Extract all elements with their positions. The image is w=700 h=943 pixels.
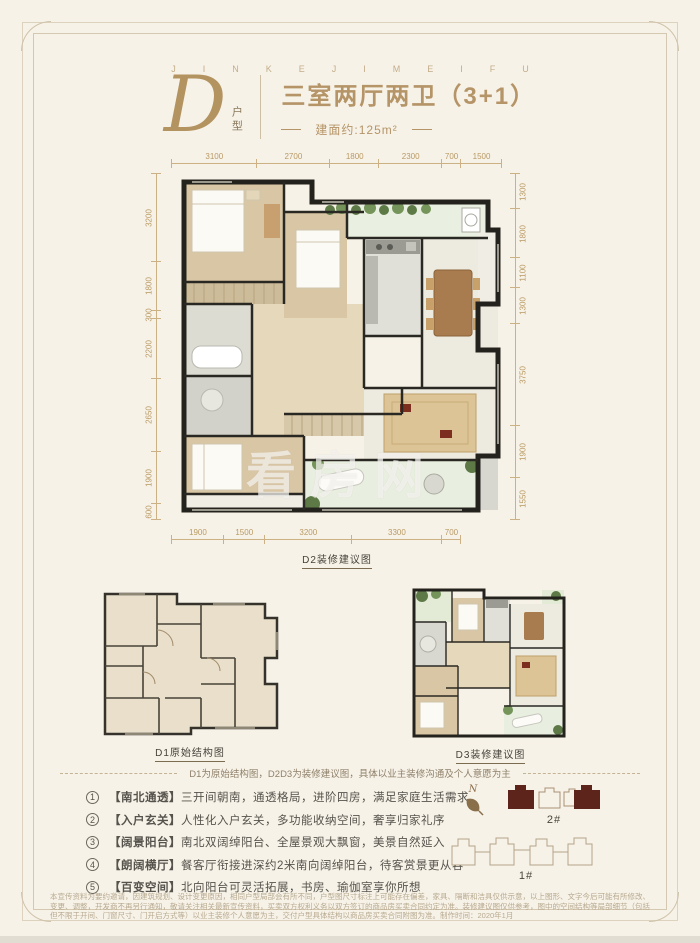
feature-text: 三开间朝南，通透格局，进阶四房，满足家庭生活需求 xyxy=(181,789,469,805)
feature-tag: 【朗阔横厅】 xyxy=(109,857,181,873)
building-1-graphic xyxy=(450,834,602,868)
poster-page: JINKEJIMEIFU D 户型 三室两厅两卫（3+1） 建面约:125m² … xyxy=(0,0,700,943)
feature-tag: 【阔景阳台】 xyxy=(109,834,181,850)
dim-chain-bottom: 1900 1500 3200 3300 700 xyxy=(172,528,461,544)
unit-header: D 户型 三室两厅两卫（3+1） 建面约:125m² xyxy=(0,72,700,142)
dim-label: 1800 xyxy=(330,152,379,168)
dim-label: 2200 xyxy=(145,340,154,358)
legal-disclaimer: 本宣传资料为要约邀请，因建筑规划、设计变更原因，相同户型局部会有所不同，户型图尺… xyxy=(50,892,650,921)
frame-corner-arc xyxy=(649,892,679,922)
building-2-shape xyxy=(506,782,602,817)
feature-item: 3 【阔景阳台】 南北双阔绰阳台、全屋景观大飘窗，美景自然延入 xyxy=(86,834,486,850)
note-text: D1为原始结构图，D2D3为装修建议图，具体以业主装修沟通及个人意愿为主 xyxy=(189,766,510,780)
unit-letter-label: 户型 xyxy=(228,106,244,134)
floorplan-d2-graphic xyxy=(172,174,502,520)
caption-d2: D2装修建议图 xyxy=(172,551,502,568)
feature-tag: 【南北通透】 xyxy=(109,789,181,805)
compass: N xyxy=(456,784,490,822)
feature-text: 南北双阔绰阳台、全屋景观大飘窗，美景自然延入 xyxy=(181,834,445,850)
frame-corner-arc xyxy=(649,21,679,51)
caption-d3: D3装修建议图 xyxy=(408,746,573,763)
building-1-label: 1# xyxy=(450,870,602,882)
feature-item: 1 【南北通透】 三开间朝南，通透格局，进阶四房，满足家庭生活需求 xyxy=(86,789,486,805)
dim-label: 1300 xyxy=(519,183,528,201)
floorplan-d1 xyxy=(95,588,285,745)
feature-item: 2 【入户玄关】 人性化入户玄关，多功能收纳空间，奢享归家礼序 xyxy=(86,812,486,828)
dim-chain-left: 3200 1800 300 2200 2650 1900 600 xyxy=(146,174,162,520)
feature-text: 餐客厅衔接进深约2米南向阔绰阳台，待客赏景更从容 xyxy=(181,857,464,873)
building-1-shape xyxy=(450,834,602,873)
feature-number: 3 xyxy=(86,836,99,849)
dim-label: 1100 xyxy=(519,265,528,282)
dim-label: 1550 xyxy=(519,490,528,508)
dim-label: 700 xyxy=(442,152,461,168)
dash-left xyxy=(281,129,301,130)
disclaimer-line: 门开启方式等）以业主装修个人意愿为主，交付户型具体结构以商品房买卖合同附图为准。… xyxy=(140,911,513,920)
dim-label: 1500 xyxy=(461,152,502,168)
unit-letter: D xyxy=(164,70,227,140)
note-dash-right xyxy=(523,773,640,774)
dim-label: 3750 xyxy=(519,366,528,384)
dim-label: 1900 xyxy=(145,469,154,487)
floorplan-d3 xyxy=(408,584,573,747)
frame-corner-arc xyxy=(21,21,51,51)
dim-chain-top: 3100 2700 1800 2300 700 1500 xyxy=(172,152,502,168)
header-divider xyxy=(260,75,261,139)
dash-right xyxy=(412,129,432,130)
plans-note: D1为原始结构图，D2D3为装修建议图，具体以业主装修沟通及个人意愿为主 xyxy=(60,766,640,780)
dim-label: 1900 xyxy=(519,443,528,461)
dim-label: 1800 xyxy=(145,277,154,295)
area-value: 建面约:125m² xyxy=(315,121,397,138)
feature-number: 2 xyxy=(86,813,99,826)
feature-item: 4 【朗阔横厅】 餐客厅衔接进深约2米南向阔绰阳台，待客赏景更从容 xyxy=(86,857,486,873)
frame-corner-arc xyxy=(21,892,51,922)
caption-d1: D1原始结构图 xyxy=(95,744,285,761)
dim-label: 1500 xyxy=(224,528,265,544)
dim-label: 1300 xyxy=(519,297,528,315)
dim-label: 3200 xyxy=(265,528,352,544)
note-dash-left xyxy=(60,773,177,774)
dim-label: 2700 xyxy=(257,152,331,168)
feature-text: 人性化入户玄关，多功能收纳空间，奢享归家礼序 xyxy=(181,812,445,828)
page-bottom-edge xyxy=(0,936,700,943)
dim-label: 600 xyxy=(145,505,154,518)
floorplan-d3-graphic xyxy=(408,584,573,742)
dim-label: 3200 xyxy=(145,209,154,227)
dim-label: 2300 xyxy=(379,152,442,168)
dim-label: 2650 xyxy=(145,406,154,424)
dim-label: 1800 xyxy=(519,225,528,243)
dim-chain-right: 1300 1800 1100 1300 3750 1900 1550 xyxy=(510,174,526,520)
page-title: 三室两厅两卫（3+1） xyxy=(281,76,536,111)
area-line: 建面约:125m² xyxy=(281,121,536,138)
feature-number: 1 xyxy=(86,791,99,804)
feature-list: 1 【南北通透】 三开间朝南，通透格局，进阶四房，满足家庭生活需求 2 【入户玄… xyxy=(86,789,486,902)
floorplan-d1-graphic xyxy=(95,588,285,740)
building-2-label: 2# xyxy=(506,814,602,826)
dim-label: 1900 xyxy=(172,528,224,544)
dim-label: 3100 xyxy=(172,152,257,168)
building-2-graphic xyxy=(506,782,602,812)
floorplan-d2 xyxy=(172,174,502,520)
compass-n-label: N xyxy=(456,784,490,795)
feature-tag: 【入户玄关】 xyxy=(109,812,181,828)
feature-number: 4 xyxy=(86,858,99,871)
dim-label: 3300 xyxy=(352,528,442,544)
compass-leaf-icon xyxy=(461,795,485,817)
dim-label: 700 xyxy=(442,528,461,544)
